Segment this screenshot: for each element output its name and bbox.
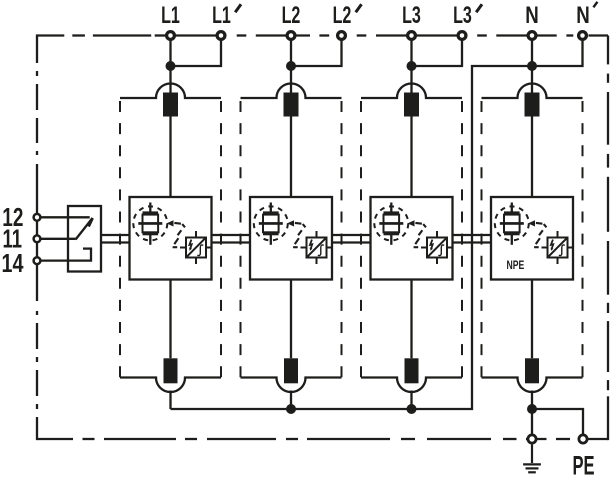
svg-text:L2: L2 (282, 2, 301, 29)
svg-text:NPE: NPE (507, 258, 525, 272)
svg-text:N: N (525, 2, 539, 29)
svg-text:14: 14 (2, 248, 24, 278)
svg-text:L1: L1 (212, 2, 231, 29)
svg-text:L2: L2 (333, 2, 352, 29)
svg-text:N: N (576, 2, 590, 29)
svg-text:L3: L3 (402, 2, 421, 29)
svg-text:L3: L3 (453, 2, 472, 29)
svg-text:PE: PE (572, 450, 594, 480)
svg-text:L1: L1 (161, 2, 180, 29)
